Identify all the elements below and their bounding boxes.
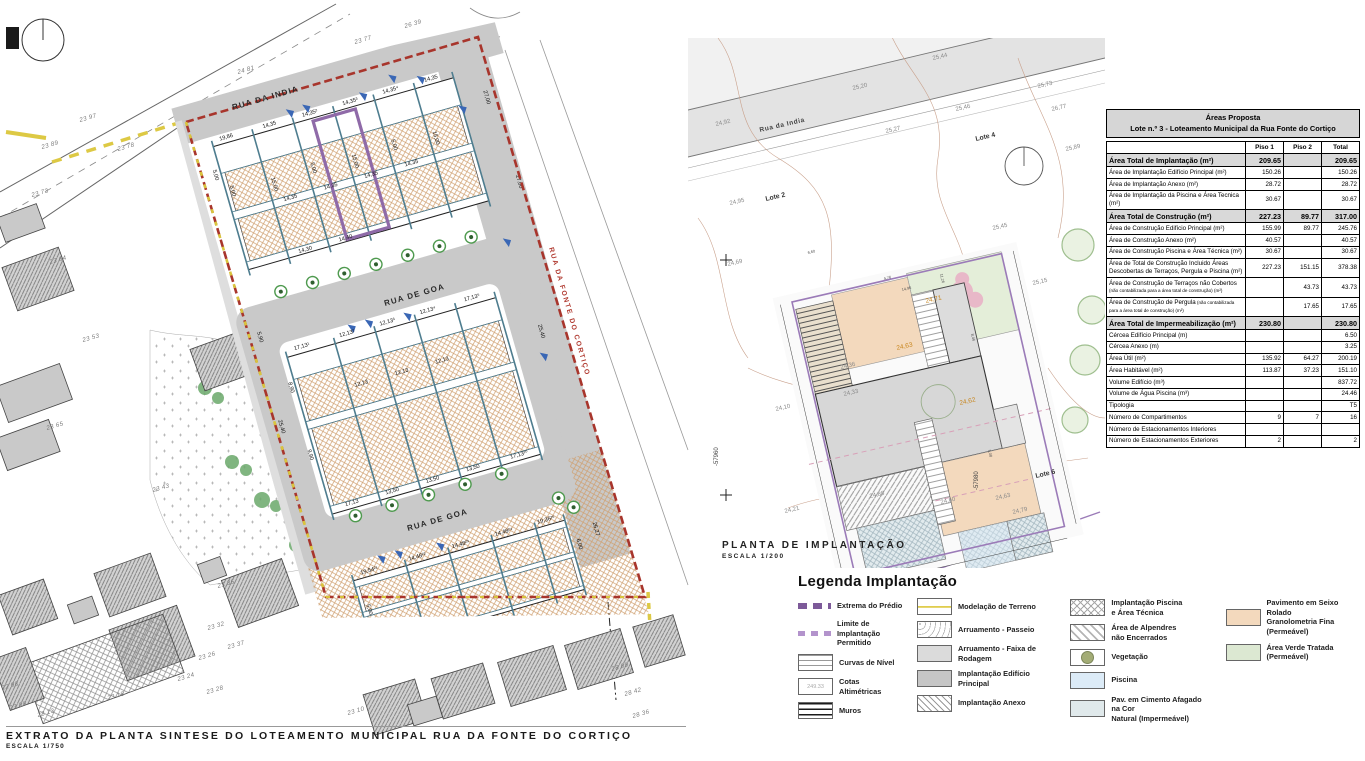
table-cell-value — [1284, 179, 1322, 191]
table-cell-value — [1284, 377, 1322, 389]
legend-item-label: Arruamento - Passeio — [958, 625, 1034, 635]
table-row-label: Número de Estacionamentos Interiores — [1107, 424, 1246, 436]
mid-plan-title-block: PLANTA DE IMPLANTAÇÃO ESCALA 1/200 — [722, 540, 907, 560]
table-cell-value: 30.67 — [1246, 190, 1284, 210]
table-row-label: Área de Construção Anexo (m²) — [1107, 235, 1246, 247]
coordinate-label: -57960 — [714, 447, 720, 466]
table-cell-value: 3.25 — [1322, 341, 1360, 353]
table-cell-value — [1284, 190, 1322, 210]
tree-icon — [1078, 296, 1105, 324]
table-cell-value — [1284, 341, 1322, 353]
elevation-label: 23 78 — [116, 141, 136, 153]
tree-icon — [1062, 407, 1088, 433]
table-cell-value — [1246, 424, 1284, 436]
table-cell-value: 209.65 — [1246, 154, 1284, 167]
legend: Legenda Implantação Extrema do PrédioLim… — [798, 573, 1363, 723]
legend-swatch-verde-icon — [1226, 644, 1261, 661]
table-cell-value — [1246, 377, 1284, 389]
legend-item: Implantação Piscina e Área Técnica — [1070, 598, 1211, 617]
legend-swatch-alpendres-icon — [1070, 624, 1105, 641]
elevation-label: 23 26 — [197, 650, 217, 662]
legend-swatch-edificio-icon — [917, 670, 952, 687]
areas-table: Áreas Proposta Lote n.º 3 - Loteamento M… — [1106, 109, 1360, 448]
table-cell-value: 230.80 — [1246, 317, 1284, 330]
legend-item-label: Piscina — [1111, 675, 1137, 685]
table-row-note: (não contabilizada para a área total de … — [1109, 288, 1222, 293]
legend-item: Curvas de Nível — [798, 654, 903, 671]
table-row: Número de Estacionamentos Exteriores22 — [1107, 435, 1360, 447]
table-cell-value — [1284, 424, 1322, 436]
contour-elevation-label: 25,27 — [885, 126, 902, 135]
table-cell-value: 43.73 — [1322, 278, 1360, 298]
implantation-plan: 25,4425,2024,9225,7325,4626,7725,8925,27… — [688, 38, 1105, 568]
existing-building — [633, 615, 685, 667]
legend-item-label: Curvas de Nível — [839, 658, 894, 668]
contour-elevation-label: 24,21 — [784, 506, 801, 515]
left-plan-title: EXTRATO DA PLANTA SINTESE DO LOTEAMENTO … — [6, 730, 686, 742]
legend-item-label: Vegetação — [1111, 652, 1148, 662]
table-cell-value — [1284, 154, 1322, 167]
existing-building — [67, 596, 98, 624]
table-cell-value: 30.67 — [1322, 246, 1360, 258]
legend-item: Pav. em Cimento Afagado na Cor Natural (… — [1070, 695, 1211, 724]
legend-item-label: Muros — [839, 706, 861, 716]
table-row-label: Cércea Anexo (m) — [1107, 341, 1246, 353]
table-row: Área Útil (m²)135.9264.27200.19 — [1107, 353, 1360, 365]
coordinate-label: -57980 — [974, 471, 980, 490]
lot3-plan — [771, 242, 1086, 568]
contour-elevation-label: 24,95 — [729, 198, 746, 207]
table-row: Área Habitável (m²)113.8737.23151.10 — [1107, 365, 1360, 377]
drawing-sheet: 19,8614,3514,35²14,35³14,35⁴14,3514,3514… — [0, 0, 1365, 761]
elevation-label: 28 36 — [631, 708, 651, 720]
table-row: Área de Construção Anexo (m²)40.5740.57 — [1107, 235, 1360, 247]
table-row: Área de Implantação Anexo (m²)28.7228.72 — [1107, 179, 1360, 191]
legend-item-label: Arruamento - Faixa de Rodagem — [958, 644, 1056, 663]
table-cell-value: 16 — [1322, 412, 1360, 424]
table-row: Área de Implantação da Piscina e Área Te… — [1107, 190, 1360, 210]
table-row: Área de Total de Construção Incluido Áre… — [1107, 258, 1360, 278]
table-cell-value: 151.10 — [1322, 365, 1360, 377]
tree-icon — [225, 455, 239, 469]
table-row-label: Número de Compartimentos — [1107, 412, 1246, 424]
vegetation-dot-icon — [1081, 651, 1094, 664]
legend-item-label: Pav. em Cimento Afagado na Cor Natural (… — [1111, 695, 1211, 724]
table-row-label: Volume Edifício (m³) — [1107, 377, 1246, 389]
table-row: Cércea Edifício Principal (m)6.50 — [1107, 330, 1360, 342]
legend-item: Modelação de Terreno — [917, 598, 1056, 615]
table-row-label: Área de Construção Piscina e Área Técnic… — [1107, 246, 1246, 258]
legend-swatch-piscina-tecnica-icon — [1070, 599, 1105, 616]
legend-item: Piscina — [1070, 672, 1211, 689]
table-row: Volume Edifício (m³)837.72 — [1107, 377, 1360, 389]
table-cell-value — [1284, 246, 1322, 258]
legend-item: Arruamento - Passeio — [917, 621, 1056, 638]
tree-icon — [1062, 229, 1094, 261]
table-cell-value: 9 — [1246, 412, 1284, 424]
contour-elevation-label: 25,15 — [1032, 278, 1049, 287]
left-plan-scale: ESCALA 1/750 — [6, 743, 686, 750]
table-cell-value: 89.77 — [1284, 223, 1322, 235]
table-row-label: Cércea Edifício Principal (m) — [1107, 330, 1246, 342]
table-cell-value — [1284, 235, 1322, 247]
dimension-label: 14,48 — [391, 624, 406, 634]
legend-item-label: Implantação Anexo — [958, 698, 1026, 708]
legend-swatch-seixo-icon — [1226, 609, 1261, 626]
table-cell-value: 6.50 — [1322, 330, 1360, 342]
table-row-label: Área de Construção Edifício Principal (m… — [1107, 223, 1246, 235]
left-plan-title-block: EXTRATO DA PLANTA SINTESE DO LOTEAMENTO … — [6, 726, 686, 750]
elevation-label: 23 97 — [78, 112, 98, 124]
table-cell-value: 113.87 — [1246, 365, 1284, 377]
table-row: Área Total de Construção (m²)227.2389.77… — [1107, 210, 1360, 223]
mid-plan-scale: ESCALA 1/200 — [722, 553, 907, 560]
table-cell-value: 30.67 — [1322, 190, 1360, 210]
table-cell-value: 7 — [1284, 412, 1322, 424]
elevation-label: 26 39 — [403, 18, 423, 30]
table-cell-value: 37.23 — [1284, 365, 1322, 377]
legend-item: Limite de Implantação Permitido — [798, 619, 903, 648]
legend-item: Implantação Anexo — [917, 695, 1056, 712]
table-row: Volume de Água Piscina (m³)24.46 — [1107, 388, 1360, 400]
elevation-label: 23 89 — [40, 139, 60, 151]
legend-swatch-cotas-icon: 249.33 — [798, 678, 833, 695]
legend-item: Muros — [798, 702, 903, 719]
elevation-label: 23 10 — [346, 705, 366, 717]
contour-elevation-label: 25,45 — [992, 223, 1009, 232]
existing-building — [0, 579, 58, 635]
table-row: Número de Estacionamentos Interiores — [1107, 424, 1360, 436]
table-cell-value: 209.65 — [1322, 154, 1360, 167]
table-cell-value: 28.72 — [1322, 179, 1360, 191]
contour-elevation-label: 24,10 — [775, 404, 792, 413]
tree-icon — [254, 492, 270, 508]
legend-swatch-curvas-icon — [798, 654, 833, 671]
elevation-label: 23 28 — [205, 684, 225, 696]
table-row-label: Área Total de Impermeabilização (m²) — [1107, 317, 1246, 330]
elevation-label: 23 32 — [206, 620, 226, 632]
legend-item-label: Área Verde Tratada (Permeável) — [1267, 643, 1363, 662]
table-cell-value: 378.38 — [1322, 258, 1360, 278]
legend-title: Legenda Implantação — [798, 573, 1363, 590]
tree-icon — [212, 392, 224, 404]
swatch-value: 249.33 — [807, 684, 824, 690]
table-cell-value: 150.26 — [1246, 167, 1284, 179]
table-row: Número de Compartimentos9716 — [1107, 412, 1360, 424]
legend-item: Área Verde Tratada (Permeável) — [1226, 643, 1363, 662]
contour-elevation-label: 25,73 — [1037, 81, 1054, 90]
legend-item: Pavimento em Seixo Rolado Granolometria … — [1226, 598, 1363, 637]
table-cell-value: 135.92 — [1246, 353, 1284, 365]
table-cell-value: 227.23 — [1246, 210, 1284, 223]
legend-swatch-cimento-icon — [1070, 700, 1105, 717]
table-cell-value: 64.27 — [1284, 353, 1322, 365]
legend-swatch-muros-icon — [798, 702, 833, 719]
legend-swatch-limite-icon — [798, 626, 831, 641]
table-row-label: Área de Implantação Anexo (m²) — [1107, 179, 1246, 191]
legend-swatch-passeio-icon — [917, 621, 952, 638]
table-row: TipologiaT5 — [1107, 400, 1360, 412]
elevation-label: 28 42 — [623, 686, 643, 698]
legend-swatch-modelacao-icon — [917, 598, 952, 615]
table-row-label: Tipologia — [1107, 400, 1246, 412]
lot-number-label: Lote 4 — [975, 132, 996, 143]
table-cell-value: 30.67 — [1246, 246, 1284, 258]
table-cell-value: 150.26 — [1322, 167, 1360, 179]
elevation-label: 24 81 — [236, 64, 256, 76]
legend-item-label: Implantação Piscina e Área Técnica — [1111, 598, 1182, 617]
table-cell-value — [1284, 317, 1322, 330]
legend-swatch-vegetacao-icon — [1070, 649, 1105, 666]
table-cell-value: 245.76 — [1322, 223, 1360, 235]
legend-column: Pavimento em Seixo Rolado Granolometria … — [1226, 598, 1363, 662]
legend-column: Implantação Piscina e Área TécnicaÁrea d… — [1070, 598, 1211, 723]
legend-item-label: Implantação Edifício Principal — [958, 669, 1030, 688]
mid-plan-title: PLANTA DE IMPLANTAÇÃO — [722, 540, 907, 551]
elevation-label: 23 53 — [81, 332, 101, 344]
table-row: Área de Construção de Terraços não Cober… — [1107, 278, 1360, 298]
legend-item-label: Área de Alpendres não Encerrados — [1111, 623, 1176, 642]
site-plan-extract: 19,8614,3514,35²14,35³14,35⁴14,3514,3514… — [0, 0, 690, 761]
legend-item-label: Pavimento em Seixo Rolado Granolometria … — [1267, 598, 1363, 637]
table-row-note: (não contabilizada para a área total de … — [1109, 300, 1234, 313]
table-cell-value: 151.15 — [1284, 258, 1322, 278]
areas-table-title: Áreas Proposta Lote n.º 3 - Loteamento M… — [1106, 109, 1360, 138]
lot-number-label: Lote 2 — [765, 192, 786, 203]
survey-cross-icon — [720, 489, 732, 501]
legend-item: Área de Alpendres não Encerrados — [1070, 623, 1211, 642]
table-cell-value: 837.72 — [1322, 377, 1360, 389]
areas-table-grid: Piso 1Piso 2Total Área Total de Implanta… — [1106, 141, 1360, 447]
table-row-label: Área de Implantação da Piscina e Área Te… — [1107, 190, 1246, 210]
table-cell-value — [1284, 330, 1322, 342]
table-row: Área de Construção de Pergula (não conta… — [1107, 297, 1360, 317]
legend-swatch-piscina-icon — [1070, 672, 1105, 689]
table-cell-value — [1246, 278, 1284, 298]
table-cell-value — [1284, 167, 1322, 179]
contour-elevation-label: 26,77 — [1051, 104, 1068, 113]
existing-building — [94, 553, 166, 617]
legend-item: 249.33Cotas Altimétricas — [798, 677, 903, 696]
contour-elevation-label: 25,89 — [1065, 144, 1082, 153]
table-cell-value — [1246, 341, 1284, 353]
table-cell-value: 28.72 — [1246, 179, 1284, 191]
legend-item-label: Extrema do Prédio — [837, 601, 902, 611]
legend-swatch-faixa-icon — [917, 645, 952, 662]
table-row-label: Área Habitável (m²) — [1107, 365, 1246, 377]
tree-icon — [1070, 345, 1100, 375]
table-cell-value: 43.73 — [1284, 278, 1322, 298]
table-row-label: Área Total de Implantação (m²) — [1107, 154, 1246, 167]
table-row: Área de Construção Edifício Principal (m… — [1107, 223, 1360, 235]
table-cell-value: 155.99 — [1246, 223, 1284, 235]
table-row-label: Volume de Água Piscina (m³) — [1107, 388, 1246, 400]
table-row-label: Área de Total de Construção Incluido Áre… — [1107, 258, 1246, 278]
table-cell-value — [1284, 388, 1322, 400]
table-cell-value: 17.65 — [1284, 297, 1322, 317]
legend-item-label: Limite de Implantação Permitido — [837, 619, 903, 648]
sheet-mark — [6, 27, 19, 49]
table-cell-value — [1246, 400, 1284, 412]
table-cell-value: 200.19 — [1322, 353, 1360, 365]
table-row-label: Área Útil (m²) — [1107, 353, 1246, 365]
table-row: Cércea Anexo (m)3.25 — [1107, 341, 1360, 353]
elevation-label: 23 73 — [30, 187, 50, 199]
table-cell-value — [1284, 435, 1322, 447]
table-cell-value: 2 — [1246, 435, 1284, 447]
table-row: Área de Construção Piscina e Área Técnic… — [1107, 246, 1360, 258]
table-cell-value: 40.57 — [1322, 235, 1360, 247]
legend-item: Implantação Edifício Principal — [917, 669, 1056, 688]
dimension-label: 6,60 — [807, 248, 816, 255]
table-row-label: Área de Implantação Edifício Principal (… — [1107, 167, 1246, 179]
legend-column: Extrema do PrédioLimite de Implantação P… — [798, 598, 903, 719]
table-column-header: Piso 2 — [1284, 142, 1322, 154]
table-row-label: Área de Construção de Terraços não Cober… — [1107, 278, 1246, 298]
table-cell-value: 17.65 — [1322, 297, 1360, 317]
table-cell-value: 89.77 — [1284, 210, 1322, 223]
existing-building — [0, 204, 45, 243]
table-cell-value — [1284, 400, 1322, 412]
elevation-label: 23 37 — [226, 639, 246, 651]
contour-elevation-label: 25,46 — [955, 104, 972, 113]
legend-item: Extrema do Prédio — [798, 598, 903, 613]
legend-item-label: Cotas Altimétricas — [839, 677, 903, 696]
elevation-label: 23 77 — [353, 34, 373, 46]
table-row: Área Total de Implantação (m²)209.65209.… — [1107, 154, 1360, 167]
existing-building — [565, 629, 634, 690]
table-cell-value: T5 — [1322, 400, 1360, 412]
table-column-header: Piso 1 — [1246, 142, 1284, 154]
table-row: Área Total de Impermeabilização (m²)230.… — [1107, 317, 1360, 330]
legend-item: Arruamento - Faixa de Rodagem — [917, 644, 1056, 663]
table-cell-value: 227.23 — [1246, 258, 1284, 278]
table-cell-value — [1246, 330, 1284, 342]
legend-swatch-anexo-icon — [917, 695, 952, 712]
table-cell-value: 317.00 — [1322, 210, 1360, 223]
existing-building — [22, 614, 184, 724]
table-row-label: Número de Estacionamentos Exteriores — [1107, 435, 1246, 447]
legend-item: Vegetação — [1070, 649, 1211, 666]
existing-building — [498, 646, 567, 707]
table-cell-value: 24.46 — [1322, 388, 1360, 400]
legend-column: Modelação de TerrenoArruamento - Passeio… — [917, 598, 1056, 712]
legend-item-label: Modelação de Terreno — [958, 602, 1036, 612]
table-row-label: Área de Construção de Pergula (não conta… — [1107, 297, 1246, 317]
tree-icon — [240, 464, 252, 476]
dimension-label: 5,00 — [211, 169, 220, 181]
table-cell-value — [1246, 297, 1284, 317]
table-cell-value — [1246, 388, 1284, 400]
road-marking-yellow — [52, 120, 188, 162]
table-cell-value: 40.57 — [1246, 235, 1284, 247]
table-cell-value: 230.80 — [1322, 317, 1360, 330]
existing-building — [0, 364, 72, 423]
table-cell-value: 2 — [1322, 435, 1360, 447]
table-cell-value — [1322, 424, 1360, 436]
table-row-label: Área Total de Construção (m²) — [1107, 210, 1246, 223]
table-column-header: Total — [1322, 142, 1360, 154]
table-row: Área de Implantação Edifício Principal (… — [1107, 167, 1360, 179]
legend-swatch-extrema-icon — [798, 598, 831, 613]
